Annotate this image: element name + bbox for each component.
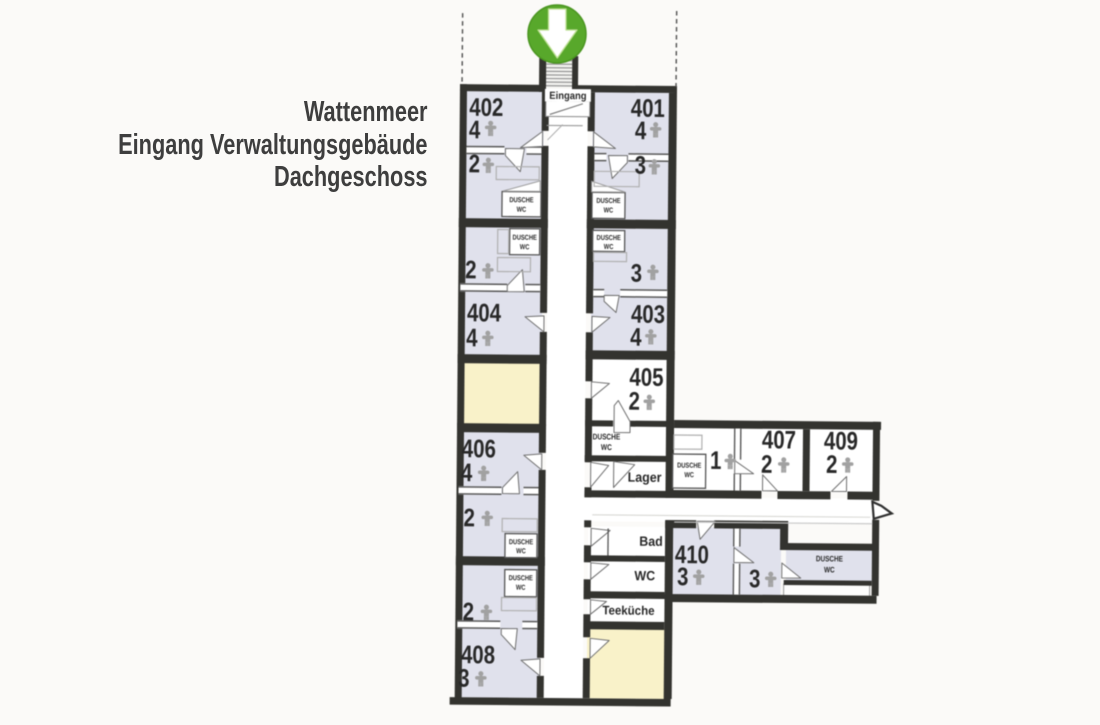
- svg-text:4: 4: [630, 322, 642, 351]
- svg-text:Bad: Bad: [639, 533, 663, 549]
- svg-text:2: 2: [463, 503, 475, 532]
- svg-text:1: 1: [710, 446, 722, 475]
- svg-text:DUSCHE: DUSCHE: [509, 539, 534, 547]
- svg-text:DUSCHE: DUSCHE: [509, 197, 534, 205]
- svg-text:DUSCHE: DUSCHE: [513, 234, 538, 242]
- svg-text:2: 2: [465, 255, 477, 284]
- svg-text:WC: WC: [604, 243, 614, 251]
- svg-text:2: 2: [826, 450, 838, 479]
- svg-text:3: 3: [635, 150, 647, 179]
- svg-text:DUSCHE: DUSCHE: [677, 462, 702, 470]
- svg-text:2: 2: [469, 149, 481, 178]
- svg-text:WC: WC: [520, 244, 530, 252]
- svg-text:3: 3: [677, 562, 689, 591]
- svg-text:WC: WC: [684, 472, 694, 480]
- svg-text:2: 2: [628, 386, 640, 415]
- svg-text:WC: WC: [604, 207, 614, 215]
- svg-text:WC: WC: [824, 565, 835, 575]
- svg-text:DUSCHE: DUSCHE: [816, 554, 843, 564]
- svg-text:Eingang: Eingang: [549, 91, 586, 103]
- svg-text:4: 4: [461, 458, 473, 487]
- svg-text:2: 2: [463, 597, 475, 626]
- svg-text:DUSCHE: DUSCHE: [593, 432, 621, 442]
- svg-text:Teeküche: Teeküche: [602, 603, 655, 618]
- svg-text:3: 3: [631, 258, 643, 287]
- svg-text:3: 3: [458, 663, 470, 692]
- svg-text:2: 2: [761, 450, 773, 479]
- svg-text:DUSCHE: DUSCHE: [597, 234, 622, 242]
- svg-text:3: 3: [749, 564, 761, 593]
- svg-text:WC: WC: [516, 584, 526, 592]
- svg-text:4: 4: [466, 323, 478, 352]
- svg-text:WC: WC: [517, 206, 527, 214]
- svg-text:Lager: Lager: [628, 469, 662, 485]
- svg-text:WC: WC: [516, 548, 526, 556]
- svg-text:4: 4: [635, 116, 647, 145]
- svg-text:WC: WC: [601, 442, 613, 452]
- svg-text:WC: WC: [634, 568, 655, 584]
- svg-text:4: 4: [469, 115, 481, 144]
- svg-text:DUSCHE: DUSCHE: [509, 575, 534, 583]
- svg-text:DUSCHE: DUSCHE: [596, 197, 621, 205]
